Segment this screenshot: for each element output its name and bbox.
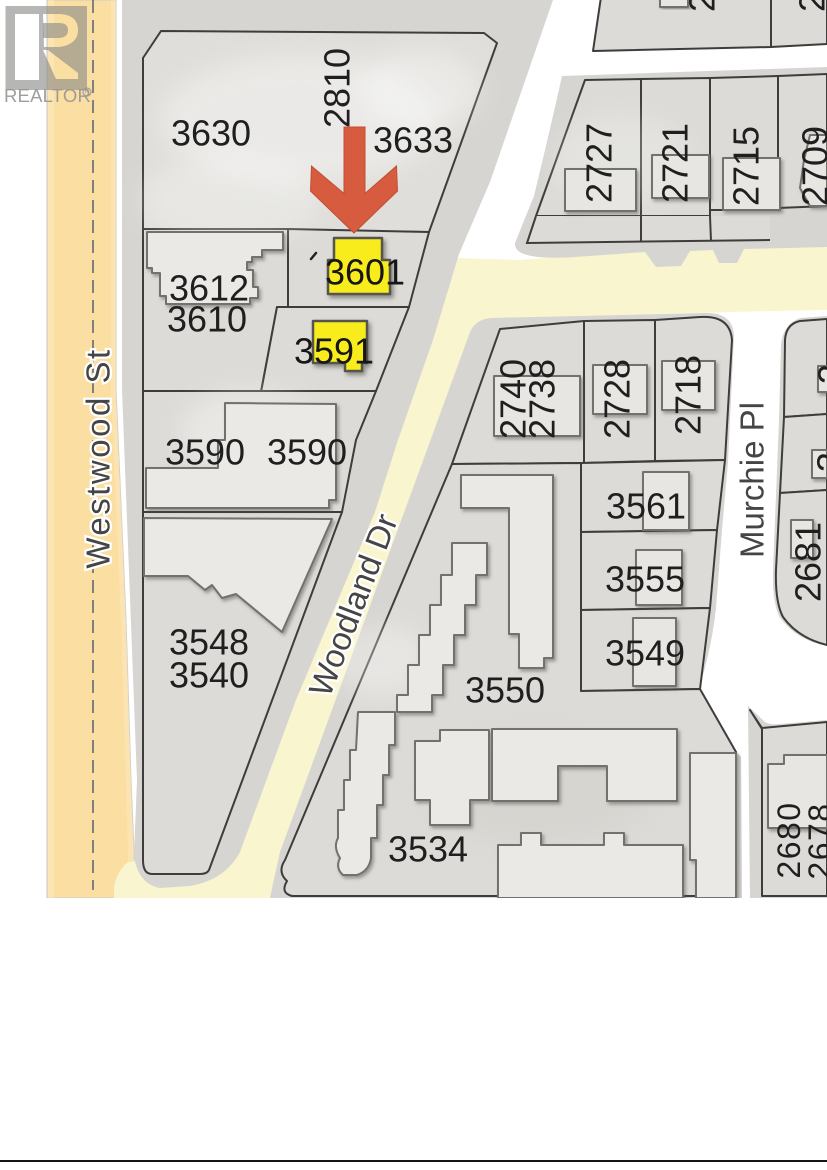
svg-text:3590: 3590: [165, 432, 245, 473]
svg-text:2738: 2738: [522, 359, 563, 439]
svg-text:3555: 3555: [605, 559, 685, 600]
svg-text:2718: 2718: [668, 355, 709, 435]
svg-text:2810: 2810: [317, 48, 358, 128]
svg-text:2709: 2709: [795, 126, 827, 206]
svg-text:3633: 3633: [373, 120, 453, 161]
svg-text:3: 3: [811, 364, 827, 384]
svg-text:Murchie Pl: Murchie Pl: [734, 402, 771, 558]
svg-text:2681: 2681: [788, 522, 827, 602]
svg-text:3549: 3549: [605, 633, 685, 674]
svg-text:R: R: [85, 90, 90, 96]
svg-text:3561: 3561: [606, 486, 686, 527]
svg-text:3601: 3601: [325, 252, 405, 293]
svg-text:2806: 2806: [682, 0, 723, 12]
svg-text:Westwood St: Westwood St: [80, 347, 117, 568]
svg-text:3540: 3540: [169, 655, 249, 696]
svg-text:3534: 3534: [388, 829, 468, 870]
svg-text:3: 3: [810, 452, 827, 472]
svg-text:3610: 3610: [167, 299, 247, 340]
svg-text:2800: 2800: [792, 0, 827, 12]
svg-text:3591: 3591: [294, 331, 374, 372]
svg-text:2715: 2715: [726, 126, 767, 206]
svg-text:2728: 2728: [597, 359, 638, 439]
svg-text:3630: 3630: [171, 113, 251, 154]
svg-text:3550: 3550: [465, 670, 545, 711]
svg-text:3590: 3590: [267, 432, 347, 473]
svg-text:REALTOR: REALTOR: [4, 85, 91, 106]
svg-text:2727: 2727: [579, 123, 620, 203]
svg-text:2721: 2721: [655, 123, 696, 203]
svg-text:2678: 2678: [802, 802, 827, 879]
